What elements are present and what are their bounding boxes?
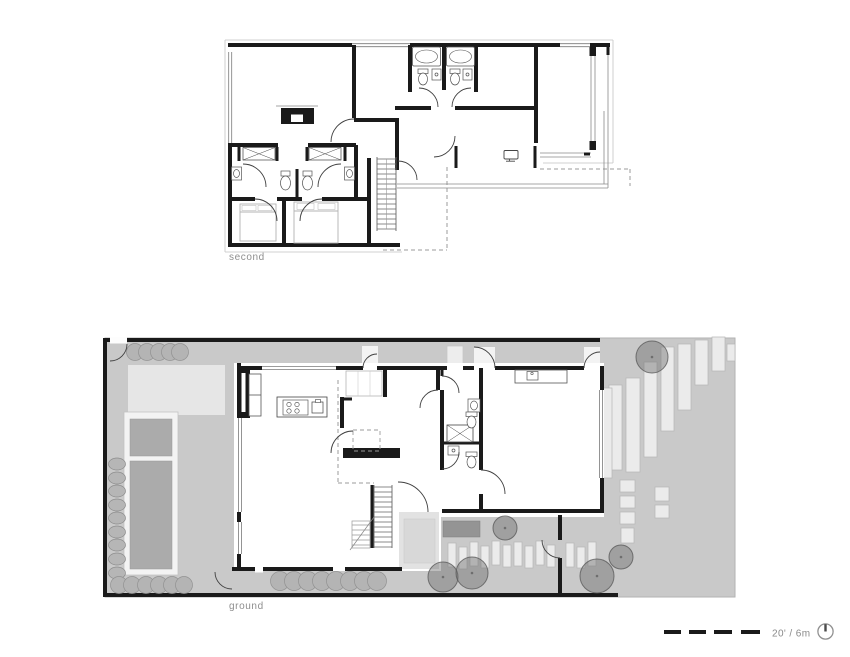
ground-floor-label: ground [229, 601, 264, 612]
scale-bar: 20' / 6m [664, 624, 833, 640]
hedge-row [271, 572, 387, 591]
floor-plan-drawing: second [0, 0, 850, 657]
desk-monitor-icon [504, 151, 518, 162]
shrub-row-top [127, 344, 189, 361]
pool [124, 412, 178, 575]
roof-dashed-outline [383, 167, 630, 250]
kitchen-island [277, 397, 327, 417]
planter [443, 521, 480, 537]
ground-floor-plan: ground [105, 337, 735, 612]
stepping-stones [109, 458, 126, 579]
closet-icon [243, 148, 341, 161]
tree-icon [609, 545, 633, 569]
kitchenette-counter [515, 370, 567, 383]
deck-patio [128, 365, 225, 415]
drawing-sheet: second [0, 0, 850, 657]
tree-icon [456, 557, 488, 589]
tree-icon [428, 562, 458, 592]
entry-closet [346, 371, 382, 396]
scale-label: 20' / 6m [772, 629, 810, 640]
tree-icon [636, 341, 668, 373]
second-walls [228, 45, 610, 247]
scale-dashes [664, 630, 760, 634]
shrub-row-bottom-left [111, 577, 193, 594]
north-arrow-icon [818, 624, 833, 639]
balcony-edges [397, 47, 608, 188]
bed-outline [240, 202, 338, 243]
tree-icon [493, 516, 517, 540]
sink-icon [312, 402, 323, 413]
closet-icon [447, 425, 473, 442]
tree-icon [580, 559, 614, 593]
pantry-cabinet [249, 374, 261, 416]
second-floor-label: second [229, 252, 265, 263]
entry-porch [399, 512, 439, 569]
sink-icon [232, 167, 355, 180]
